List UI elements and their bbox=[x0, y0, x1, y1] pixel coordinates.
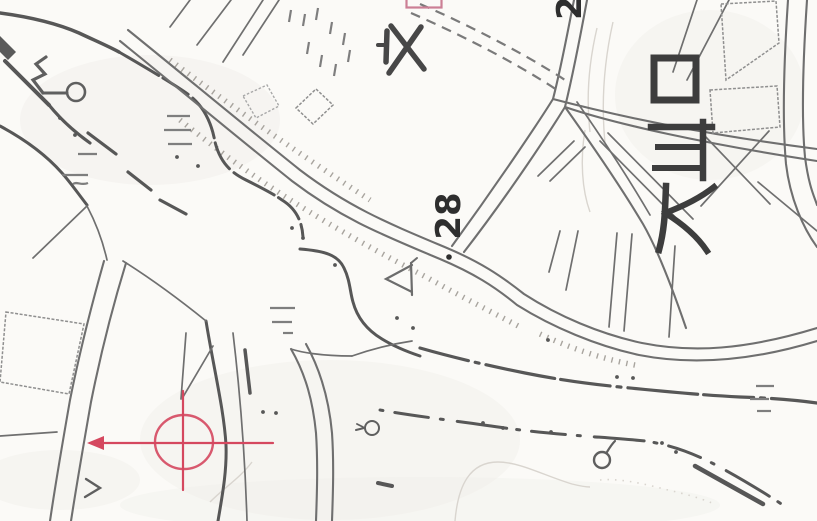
conifer-symbol bbox=[386, 258, 417, 295]
dashed-road bbox=[411, 4, 565, 90]
map-canvas[interactable]: 28 2 bbox=[0, 0, 817, 521]
partial-elevation-text: 2 bbox=[550, 0, 590, 20]
kanji-dai bbox=[659, 186, 714, 251]
river-corner-blob bbox=[0, 36, 16, 60]
spot-elevation-text: 28 bbox=[429, 192, 469, 239]
orchard-symbol-small bbox=[594, 441, 615, 468]
school-symbol bbox=[378, 26, 424, 73]
spot-elevation-dot bbox=[446, 254, 452, 260]
scanned-map-image: 28 2 bbox=[0, 0, 817, 521]
crosshair-arrowhead bbox=[87, 436, 104, 450]
